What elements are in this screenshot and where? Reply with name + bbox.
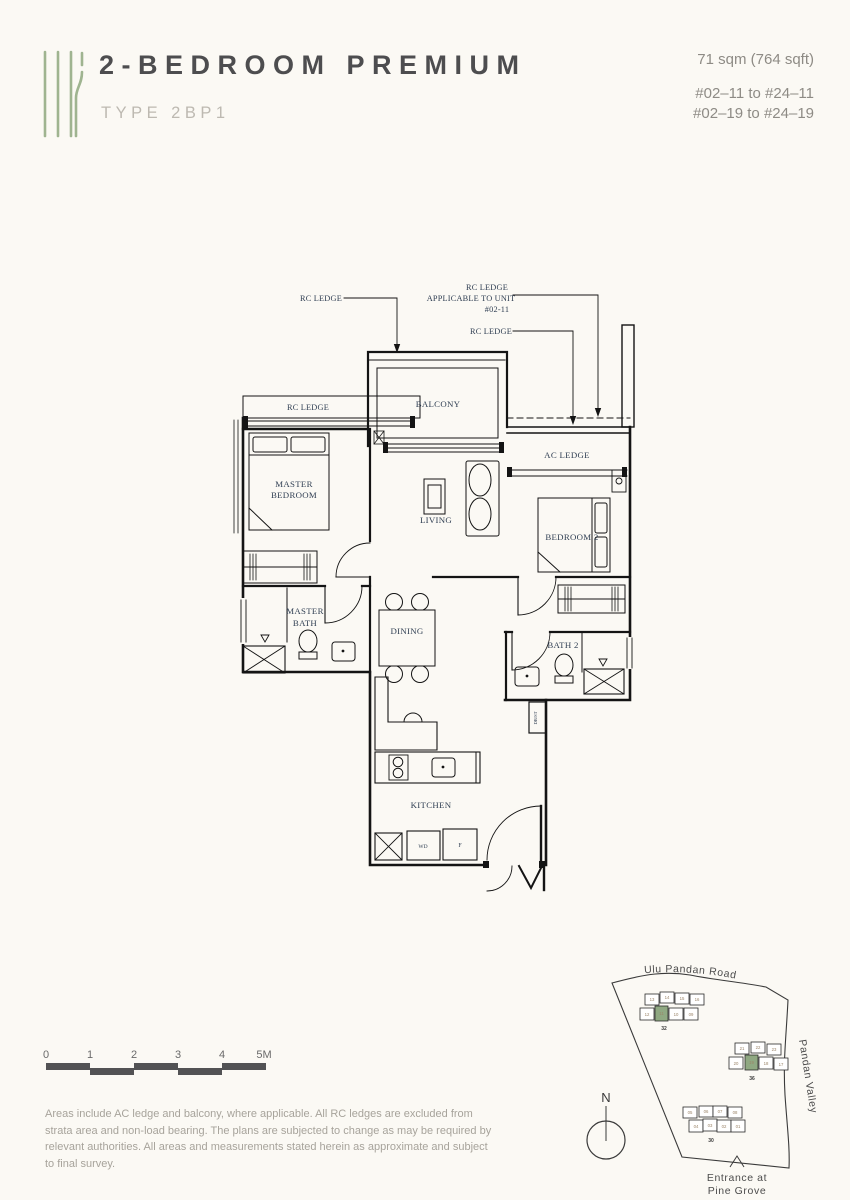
north-label: N [601, 1090, 610, 1105]
scale-4: 4 [219, 1049, 225, 1061]
unit-number: 20 [734, 1061, 739, 1066]
rc-ledge-unit-label-2: APPLICABLE TO UNIT [427, 294, 516, 303]
window-mask [624, 637, 634, 669]
master-bath-label-2: BATH [293, 618, 318, 628]
rc-ledge-strip-label: RC LEDGE [287, 403, 329, 412]
rc-ledge-unit-label-1: RC LEDGE [466, 283, 508, 292]
rc-ledge-left-label: RC LEDGE [300, 294, 342, 303]
fridge-label: F [458, 843, 462, 849]
block-number: 36 [749, 1076, 755, 1082]
unit-number: 02 [722, 1124, 727, 1129]
north-arrow: N [587, 1090, 625, 1159]
unit-number: 12 [645, 1012, 650, 1017]
unit-number: 06 [704, 1109, 709, 1114]
block-number: 30 [708, 1138, 714, 1144]
building-cluster-b: 21 22 23 20 19 18 17 36 [729, 1042, 788, 1082]
ac-ledge-label: AC LEDGE [544, 450, 590, 460]
unit-number: 03 [708, 1123, 713, 1128]
kitchen-counters [375, 677, 480, 783]
rc-ledge-strip [243, 396, 420, 426]
rc-ledge-unit-label-3: #02-11 [485, 305, 509, 314]
unit-number: 15 [680, 996, 685, 1001]
master-bedroom-label-2: BEDROOM [271, 490, 317, 500]
unit-number: 04 [694, 1124, 699, 1129]
balcony-label: BALCONY [416, 399, 461, 409]
road-label-top: Ulu Pandan Road [644, 963, 738, 981]
window-jamb [499, 442, 504, 453]
scale-2: 2 [131, 1049, 137, 1061]
unit-number: 23 [772, 1047, 777, 1052]
doors [325, 543, 556, 670]
dbst-label: DB/ST [533, 711, 538, 724]
road-label-right: Pandan Valley [796, 1039, 820, 1115]
dining-label: DINING [390, 626, 423, 636]
kitchen-label: KITCHEN [411, 800, 452, 810]
site-map: Ulu Pandan Road Pandan Valley Entrance a… [587, 963, 820, 1197]
entrance-door [487, 806, 544, 891]
coffee-table [424, 479, 445, 514]
window-jamb [507, 467, 512, 477]
master-wardrobe [243, 551, 317, 583]
unit-number: 13 [650, 997, 655, 1002]
unit-number: 09 [689, 1012, 694, 1017]
left-ledge-lines [234, 420, 238, 533]
sofa [466, 461, 499, 536]
unit-number: 22 [756, 1045, 761, 1050]
block-number: 32 [661, 1026, 667, 1032]
floor-plan: RC LEDGE RC LEDGE APPLICABLE TO UNIT #02… [234, 283, 634, 891]
unit-number: 16 [695, 997, 700, 1002]
living-label: LIVING [420, 515, 452, 525]
unit-number: 17 [779, 1062, 784, 1067]
door-jamb [483, 861, 489, 868]
building-cluster-a: 13 14 15 16 12 11 10 09 32 [640, 992, 704, 1032]
bath2-label: BATH 2 [547, 640, 578, 650]
disclaimer-text: Areas include AC ledge and balcony, wher… [45, 1106, 497, 1172]
scale-1: 1 [87, 1049, 93, 1061]
building-cluster-c: 05 06 07 08 04 03 02 01 30 [683, 1106, 745, 1144]
unit-number: 05 [688, 1110, 693, 1115]
window-jamb [410, 416, 415, 428]
master-bath-fixtures [243, 588, 355, 673]
unit-number: 18 [764, 1061, 769, 1066]
drawing-canvas: RC LEDGE RC LEDGE APPLICABLE TO UNIT #02… [0, 0, 850, 1200]
unit-number: 08 [733, 1110, 738, 1115]
unit-number: 21 [740, 1046, 745, 1051]
master-bath-label-1: MASTER [286, 606, 323, 616]
bedroom2-wardrobe [558, 585, 625, 613]
rc-ledge-right-label: RC LEDGE [470, 327, 512, 336]
scale-bar-segments [46, 1063, 266, 1075]
entrance-arrow-icon [730, 1156, 744, 1167]
leader-lines [344, 295, 598, 417]
scale-0: 0 [43, 1049, 49, 1061]
wd-label: WD [418, 844, 427, 850]
window-mask [239, 598, 248, 644]
unit-number: 07 [718, 1109, 723, 1114]
unit-number: 14 [665, 995, 670, 1000]
entrance-label-1: Entrance at [707, 1172, 767, 1184]
unit-number-highlighted: 11 [659, 1011, 664, 1016]
unit-number-highlighted: 19 [749, 1060, 754, 1065]
unit-number: 10 [674, 1012, 679, 1017]
door-jamb [539, 861, 545, 868]
unit-number: 01 [736, 1124, 741, 1129]
entrance-label-2: Pine Grove [708, 1185, 767, 1197]
dining-set [379, 594, 435, 683]
scale-bar: 0 1 2 3 4 5M [43, 1049, 272, 1075]
bedroom2-label: BEDROOM 2 [545, 532, 598, 542]
master-bedroom-label-1: MASTER [275, 479, 312, 489]
scale-3: 3 [175, 1049, 181, 1061]
scale-5m: 5M [256, 1049, 271, 1061]
